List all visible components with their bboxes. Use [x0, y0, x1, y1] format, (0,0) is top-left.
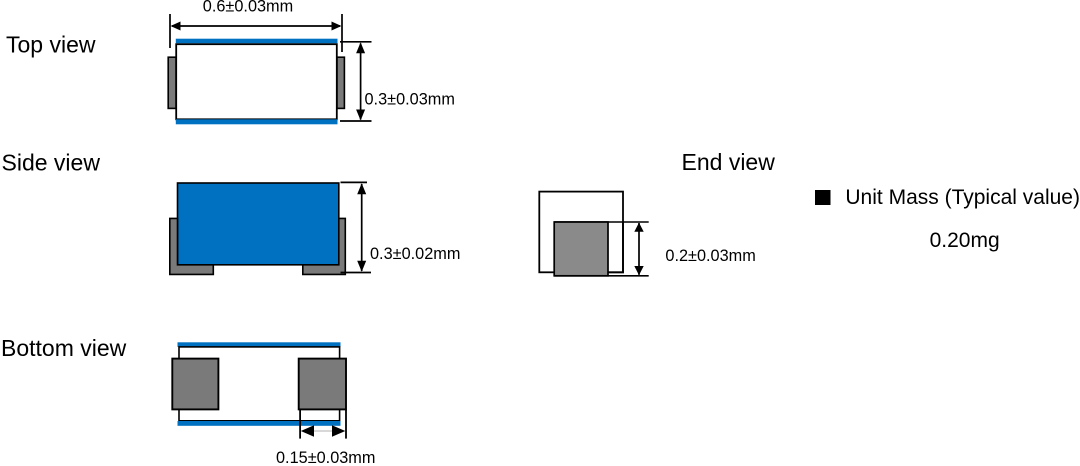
svg-text:Unit Mass (Typical value): Unit Mass (Typical value): [845, 186, 1080, 209]
svg-text:End view: End view: [682, 149, 776, 175]
svg-text:0.3±0.02mm: 0.3±0.02mm: [370, 245, 460, 263]
svg-text:Bottom view: Bottom view: [1, 335, 127, 361]
svg-text:0.15±0.03mm: 0.15±0.03mm: [276, 449, 375, 466]
svg-text:0.20mg: 0.20mg: [930, 229, 1000, 252]
svg-text:0.3±0.03mm: 0.3±0.03mm: [365, 91, 455, 109]
svg-text:Top view: Top view: [6, 32, 96, 58]
svg-text:Side view: Side view: [2, 150, 101, 176]
svg-text:0.6±0.03mm: 0.6±0.03mm: [203, 0, 293, 16]
svg-text:0.2±0.03mm: 0.2±0.03mm: [665, 247, 755, 265]
